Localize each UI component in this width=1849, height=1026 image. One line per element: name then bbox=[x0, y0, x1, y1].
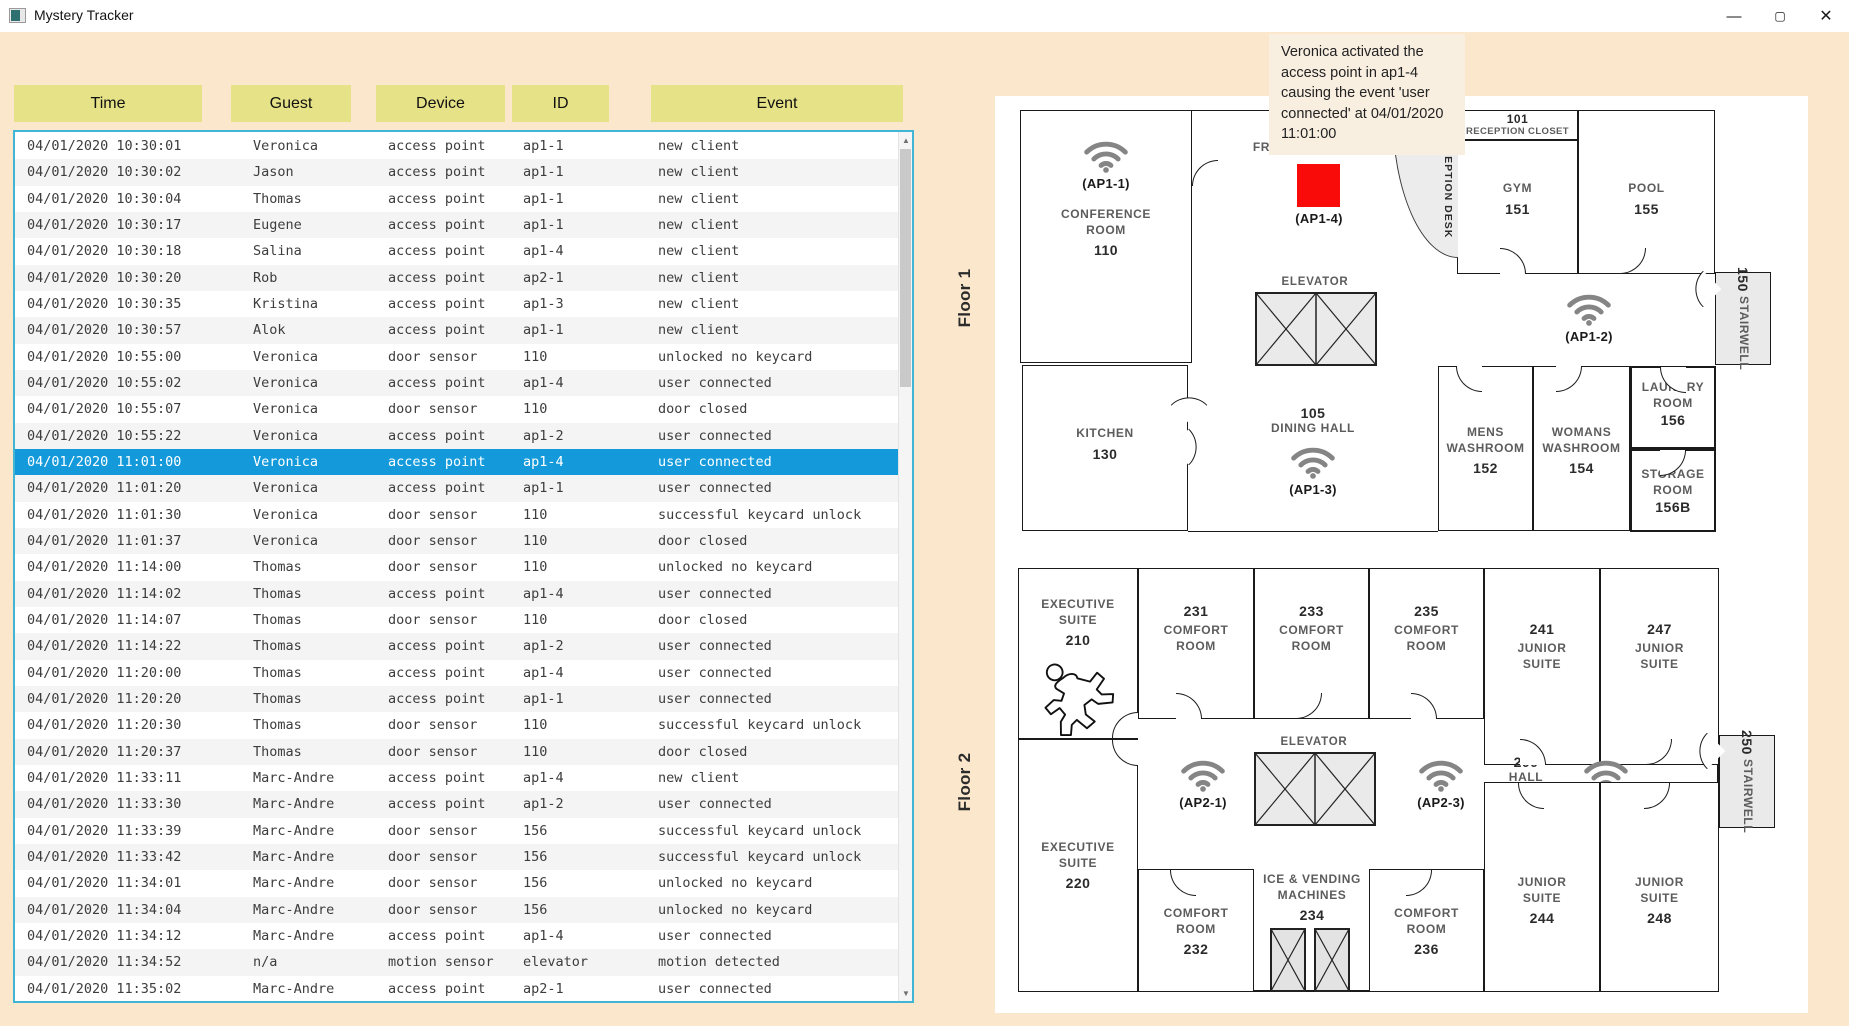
cell-guest: Veronica bbox=[253, 428, 318, 444]
header-event[interactable]: Event bbox=[651, 85, 903, 122]
cell-device: door sensor bbox=[388, 717, 477, 733]
cell-guest: Alok bbox=[253, 322, 286, 338]
cell-time: 04/01/2020 10:30:17 bbox=[27, 217, 181, 233]
ap1-4-active-marker bbox=[1297, 164, 1340, 207]
wifi-icon bbox=[1180, 756, 1226, 792]
cell-id: 110 bbox=[523, 401, 547, 417]
cell-time: 04/01/2020 11:34:01 bbox=[27, 875, 181, 891]
cell-id: 156 bbox=[523, 902, 547, 918]
cell-event: user connected bbox=[658, 691, 772, 707]
cell-device: door sensor bbox=[388, 559, 477, 575]
scroll-up-icon[interactable]: ▲ bbox=[899, 132, 913, 148]
stairwell-150: 150 STAIRWELL bbox=[1715, 272, 1771, 365]
cell-time: 04/01/2020 11:34:52 bbox=[27, 954, 181, 970]
vending-machine-icon bbox=[1314, 928, 1350, 992]
floor2-label: Floor 2 bbox=[955, 722, 975, 842]
cell-guest: Salina bbox=[253, 243, 302, 259]
cell-device: access point bbox=[388, 191, 486, 207]
app-icon bbox=[9, 8, 26, 23]
cell-device: access point bbox=[388, 796, 486, 812]
cell-guest: Thomas bbox=[253, 586, 302, 602]
cell-id: 156 bbox=[523, 875, 547, 891]
title-bar: Mystery Tracker — ▢ ✕ bbox=[0, 0, 1849, 32]
table-row[interactable]: 04/01/2020 11:34:52n/amotion sensoreleva… bbox=[15, 949, 899, 975]
table-row[interactable]: 04/01/2020 11:34:04Marc-Andredoor sensor… bbox=[15, 897, 899, 923]
cell-device: access point bbox=[388, 428, 486, 444]
cell-id: 156 bbox=[523, 823, 547, 839]
wifi-icon bbox=[1290, 443, 1336, 479]
cell-event: user connected bbox=[658, 428, 772, 444]
cell-time: 04/01/2020 10:30:57 bbox=[27, 322, 181, 338]
cell-event: unlocked no keycard bbox=[658, 349, 812, 365]
table-row[interactable]: 04/01/2020 11:01:37Veronicadoor sensor11… bbox=[15, 528, 899, 554]
cell-id: ap1-4 bbox=[523, 928, 564, 944]
cell-time: 04/01/2020 11:14:22 bbox=[27, 638, 181, 654]
cell-guest: Veronica bbox=[253, 349, 318, 365]
floor2-plan: EXECUTIVE SUITE 210 EXECUTIVE SUITE 220 … bbox=[1008, 560, 1808, 1010]
cell-event: user connected bbox=[658, 586, 772, 602]
cell-time: 04/01/2020 11:33:39 bbox=[27, 823, 181, 839]
cell-id: 110 bbox=[523, 717, 547, 733]
cell-event: successful keycard unlock bbox=[658, 507, 861, 523]
cell-id: ap1-4 bbox=[523, 770, 564, 786]
cell-time: 04/01/2020 11:01:37 bbox=[27, 533, 181, 549]
cell-time: 04/01/2020 10:55:02 bbox=[27, 375, 181, 391]
room-kitchen-130: KITCHEN 130 bbox=[1022, 365, 1188, 531]
cell-event: unlocked no keycard bbox=[658, 902, 812, 918]
room-pool-155: POOL 155 bbox=[1578, 110, 1715, 274]
table-row[interactable]: 04/01/2020 10:30:20Robaccess pointap2-1n… bbox=[15, 265, 899, 291]
ap1-1: (AP1-1) bbox=[1061, 137, 1151, 191]
room-comfort-231: 231 COMFORT ROOM bbox=[1138, 568, 1254, 719]
cell-event: new client bbox=[658, 138, 739, 154]
cell-guest: Eugene bbox=[253, 217, 302, 233]
cell-time: 04/01/2020 10:55:00 bbox=[27, 349, 181, 365]
cell-device: access point bbox=[388, 138, 486, 154]
floor1-label: Floor 1 bbox=[955, 238, 975, 358]
cell-event: user connected bbox=[658, 796, 772, 812]
cell-event: user connected bbox=[658, 454, 772, 470]
wifi-icon bbox=[1566, 290, 1612, 326]
event-table: 04/01/2020 10:30:01Veronicaaccess pointa… bbox=[13, 130, 914, 1003]
cell-device: access point bbox=[388, 454, 486, 470]
cell-event: unlocked no keycard bbox=[658, 875, 812, 891]
cell-device: access point bbox=[388, 586, 486, 602]
cell-id: elevator bbox=[523, 954, 588, 970]
door-arc bbox=[1192, 160, 1218, 186]
cell-event: door closed bbox=[658, 744, 747, 760]
cell-event: successful keycard unlock bbox=[658, 717, 861, 733]
cell-event: successful keycard unlock bbox=[658, 849, 861, 865]
table-row[interactable]: 04/01/2020 10:30:17Eugeneaccess pointap1… bbox=[15, 212, 899, 238]
cell-event: user connected bbox=[658, 928, 772, 944]
cell-guest: Marc-Andre bbox=[253, 875, 334, 891]
room-comfort-235: 235 COMFORT ROOM bbox=[1369, 568, 1484, 719]
cell-id: 110 bbox=[523, 559, 547, 575]
ap1-4: (AP1-4) bbox=[1277, 208, 1361, 226]
cell-guest: Veronica bbox=[253, 507, 318, 523]
cell-time: 04/01/2020 11:33:30 bbox=[27, 796, 181, 812]
cell-id: ap1-2 bbox=[523, 428, 564, 444]
cell-id: ap1-2 bbox=[523, 796, 564, 812]
window-title: Mystery Tracker bbox=[34, 7, 134, 23]
elevator-label-f1: ELEVATOR bbox=[1255, 276, 1375, 288]
cell-guest: Rob bbox=[253, 270, 277, 286]
cell-event: user connected bbox=[658, 981, 772, 997]
cell-device: access point bbox=[388, 638, 486, 654]
cell-time: 04/01/2020 11:01:20 bbox=[27, 480, 181, 496]
table-row[interactable]: 04/01/2020 11:33:30Marc-Andreaccess poin… bbox=[15, 791, 899, 817]
table-row[interactable]: 04/01/2020 10:55:22Veronicaaccess pointa… bbox=[15, 423, 899, 449]
floor1-plan: (AP1-1) CONFERENCE ROOM 110 FRONT LOBBY … bbox=[1008, 108, 1808, 538]
cell-event: user connected bbox=[658, 665, 772, 681]
cell-id: ap1-2 bbox=[523, 638, 564, 654]
cell-device: door sensor bbox=[388, 349, 477, 365]
cell-time: 04/01/2020 10:30:18 bbox=[27, 243, 181, 259]
cell-guest: Thomas bbox=[253, 744, 302, 760]
cell-time: 04/01/2020 11:35:02 bbox=[27, 981, 181, 997]
cell-time: 04/01/2020 11:20:37 bbox=[27, 744, 181, 760]
cell-guest: Marc-Andre bbox=[253, 823, 334, 839]
room-junior-241: 241 JUNIOR SUITE bbox=[1484, 568, 1600, 765]
cell-id: ap1-4 bbox=[523, 586, 564, 602]
cell-guest: Thomas bbox=[253, 717, 302, 733]
cell-guest: n/a bbox=[253, 954, 277, 970]
cell-guest: Veronica bbox=[253, 480, 318, 496]
table-row[interactable]: 04/01/2020 10:55:07Veronicadoor sensor11… bbox=[15, 396, 899, 422]
event-tooltip: Veronica activated the access point in a… bbox=[1269, 34, 1465, 155]
header-guest[interactable]: Guest bbox=[231, 85, 351, 122]
cell-guest: Veronica bbox=[253, 138, 318, 154]
cell-id: ap2-1 bbox=[523, 981, 564, 997]
ap2-3: (AP2-3) bbox=[1396, 756, 1486, 810]
cell-id: ap1-3 bbox=[523, 296, 564, 312]
ap1-3: (AP1-3) bbox=[1268, 443, 1358, 497]
cell-id: ap1-4 bbox=[523, 665, 564, 681]
cell-id: ap1-1 bbox=[523, 217, 564, 233]
room-conference-110: (AP1-1) CONFERENCE ROOM 110 bbox=[1020, 110, 1192, 363]
cell-device: motion sensor bbox=[388, 954, 494, 970]
cell-device: access point bbox=[388, 164, 486, 180]
cell-guest: Veronica bbox=[253, 375, 318, 391]
cell-time: 04/01/2020 10:55:22 bbox=[27, 428, 181, 444]
cell-time: 04/01/2020 11:34:12 bbox=[27, 928, 181, 944]
cell-id: ap1-1 bbox=[523, 191, 564, 207]
dining-bottom-wall bbox=[1188, 531, 1438, 532]
cell-event: new client bbox=[658, 217, 739, 233]
cell-id: 156 bbox=[523, 849, 547, 865]
cell-time: 04/01/2020 11:33:42 bbox=[27, 849, 181, 865]
table-row[interactable]: 04/01/2020 11:20:30Thomasdoor sensor110s… bbox=[15, 712, 899, 738]
cell-device: door sensor bbox=[388, 823, 477, 839]
cell-guest: Thomas bbox=[253, 638, 302, 654]
header-time[interactable]: Time bbox=[14, 85, 202, 122]
cell-id: ap2-1 bbox=[523, 270, 564, 286]
cell-id: 110 bbox=[523, 533, 547, 549]
elevator-label-f2: ELEVATOR bbox=[1254, 736, 1374, 748]
cell-device: access point bbox=[388, 296, 486, 312]
ap2-1: (AP2-1) bbox=[1158, 756, 1248, 810]
cell-time: 04/01/2020 11:20:20 bbox=[27, 691, 181, 707]
cell-device: access point bbox=[388, 270, 486, 286]
cell-device: access point bbox=[388, 928, 486, 944]
table-row[interactable]: 04/01/2020 11:14:07Thomasdoor sensor110d… bbox=[15, 607, 899, 633]
table-row[interactable]: 04/01/2020 10:30:04Thomasaccess pointap1… bbox=[15, 186, 899, 212]
cell-time: 04/01/2020 11:01:00 bbox=[27, 454, 181, 470]
table-row[interactable]: 04/01/2020 11:34:01Marc-Andredoor sensor… bbox=[15, 870, 899, 896]
stairwell-250: 250 STAIRWELL bbox=[1719, 735, 1775, 828]
cell-guest: Thomas bbox=[253, 612, 302, 628]
cell-event: new client bbox=[658, 243, 739, 259]
elevator-icon bbox=[1255, 292, 1377, 366]
cell-event: user connected bbox=[658, 480, 772, 496]
header-id[interactable]: ID bbox=[512, 85, 609, 122]
wifi-icon bbox=[1083, 137, 1129, 173]
cell-device: door sensor bbox=[388, 507, 477, 523]
room-junior-244: JUNIOR SUITE 244 bbox=[1484, 782, 1600, 992]
cell-guest: Veronica bbox=[253, 401, 318, 417]
cell-time: 04/01/2020 10:55:07 bbox=[27, 401, 181, 417]
cell-device: door sensor bbox=[388, 744, 477, 760]
maximize-button[interactable]: ▢ bbox=[1757, 0, 1803, 32]
scroll-down-icon[interactable]: ▼ bbox=[899, 985, 913, 1001]
cell-id: 110 bbox=[523, 507, 547, 523]
cell-event: successful keycard unlock bbox=[658, 823, 861, 839]
cell-device: access point bbox=[388, 322, 486, 338]
cell-id: 110 bbox=[523, 744, 547, 760]
cell-id: ap1-4 bbox=[523, 375, 564, 391]
table-row[interactable]: 04/01/2020 11:01:00Veronicaaccess pointa… bbox=[15, 449, 899, 475]
room-mens-washroom-152: MENS WASHROOM 152 bbox=[1438, 366, 1533, 531]
cell-guest: Marc-Andre bbox=[253, 981, 334, 997]
dining-hall-105: 105 DINING HALL (AP1-3) bbox=[1258, 405, 1368, 497]
cell-device: door sensor bbox=[388, 902, 477, 918]
table-row[interactable]: 04/01/2020 11:33:42Marc-Andredoor sensor… bbox=[15, 844, 899, 870]
cell-id: ap1-1 bbox=[523, 322, 564, 338]
table-row[interactable]: 04/01/2020 10:55:02Veronicaaccess pointa… bbox=[15, 370, 899, 396]
cell-event: motion detected bbox=[658, 954, 780, 970]
cell-event: door closed bbox=[658, 612, 747, 628]
cell-device: access point bbox=[388, 217, 486, 233]
cell-device: access point bbox=[388, 770, 486, 786]
cell-time: 04/01/2020 10:30:01 bbox=[27, 138, 181, 154]
cell-id: ap1-1 bbox=[523, 691, 564, 707]
cell-id: ap1-4 bbox=[523, 243, 564, 259]
cell-time: 04/01/2020 11:20:30 bbox=[27, 717, 181, 733]
cell-time: 04/01/2020 11:34:04 bbox=[27, 902, 181, 918]
cell-device: access point bbox=[388, 665, 486, 681]
table-row[interactable]: 04/01/2020 11:01:30Veronicadoor sensor11… bbox=[15, 502, 899, 528]
cell-id: ap1-1 bbox=[523, 164, 564, 180]
cell-guest: Thomas bbox=[253, 665, 302, 681]
cell-guest: Marc-Andre bbox=[253, 928, 334, 944]
cell-guest: Jason bbox=[253, 164, 294, 180]
table-row[interactable]: 04/01/2020 10:30:35Kristinaaccess pointa… bbox=[15, 291, 899, 317]
scrollbar-thumb[interactable] bbox=[900, 149, 911, 387]
cell-device: door sensor bbox=[388, 875, 477, 891]
cell-guest: Thomas bbox=[253, 191, 302, 207]
cell-guest: Veronica bbox=[253, 454, 318, 470]
table-row[interactable]: 04/01/2020 10:30:01Veronicaaccess pointa… bbox=[15, 133, 899, 159]
cell-time: 04/01/2020 11:20:00 bbox=[27, 665, 181, 681]
cell-id: 110 bbox=[523, 349, 547, 365]
cell-device: door sensor bbox=[388, 849, 477, 865]
cell-time: 04/01/2020 10:30:02 bbox=[27, 164, 181, 180]
cell-time: 04/01/2020 10:30:35 bbox=[27, 296, 181, 312]
scrollbar[interactable]: ▲ ▼ bbox=[898, 132, 912, 1001]
cell-time: 04/01/2020 11:01:30 bbox=[27, 507, 181, 523]
table-row[interactable]: 04/01/2020 10:30:02Jasonaccess pointap1-… bbox=[15, 159, 899, 185]
vending-machine-icon bbox=[1270, 928, 1306, 992]
cell-event: new client bbox=[658, 322, 739, 338]
room-reception-closet-101: 101 RECEPTION CLOSET bbox=[1457, 110, 1578, 140]
event-table-body: 04/01/2020 10:30:01Veronicaaccess pointa… bbox=[15, 133, 899, 1002]
room-womans-washroom-154: WOMANS WASHROOM 154 bbox=[1533, 366, 1630, 531]
minimize-button[interactable]: — bbox=[1711, 0, 1757, 32]
cell-event: new client bbox=[658, 270, 739, 286]
mystery-tracker-window: Mystery Tracker — ▢ ✕ Time Guest Device … bbox=[0, 0, 1849, 1026]
cell-id: ap1-1 bbox=[523, 480, 564, 496]
cell-time: 04/01/2020 11:14:02 bbox=[27, 586, 181, 602]
table-row[interactable]: 04/01/2020 11:14:22Thomasaccess pointap1… bbox=[15, 633, 899, 659]
cell-device: access point bbox=[388, 981, 486, 997]
table-row[interactable]: 04/01/2020 11:20:20Thomasaccess pointap1… bbox=[15, 686, 899, 712]
cell-time: 04/01/2020 11:14:07 bbox=[27, 612, 181, 628]
table-row[interactable]: 04/01/2020 11:20:37Thomasdoor sensor110d… bbox=[15, 739, 899, 765]
room-junior-248: JUNIOR SUITE 248 bbox=[1600, 782, 1719, 992]
cell-device: door sensor bbox=[388, 612, 477, 628]
table-row[interactable]: 04/01/2020 11:14:02Thomasaccess pointap1… bbox=[15, 581, 899, 607]
ice-vending-234: ICE & VENDING MACHINES 234 bbox=[1258, 872, 1366, 923]
cell-guest: Kristina bbox=[253, 296, 318, 312]
ap1-2: (AP1-2) bbox=[1544, 290, 1634, 344]
table-row[interactable]: 04/01/2020 10:30:18Salinaaccess pointap1… bbox=[15, 238, 899, 264]
cell-id: ap1-1 bbox=[523, 138, 564, 154]
close-button[interactable]: ✕ bbox=[1803, 0, 1849, 32]
room-comfort-232: COMFORT ROOM 232 bbox=[1138, 869, 1254, 992]
wifi-icon bbox=[1418, 756, 1464, 792]
table-row[interactable]: 04/01/2020 11:34:12Marc-Andreaccess poin… bbox=[15, 923, 899, 949]
cell-device: door sensor bbox=[388, 401, 477, 417]
table-row[interactable]: 04/01/2020 11:14:00Thomasdoor sensor110u… bbox=[15, 554, 899, 580]
cell-device: access point bbox=[388, 480, 486, 496]
cell-event: new client bbox=[658, 770, 739, 786]
cell-id: ap1-4 bbox=[523, 454, 564, 470]
room-comfort-236: COMFORT ROOM 236 bbox=[1369, 869, 1484, 992]
cell-event: user connected bbox=[658, 638, 772, 654]
table-row[interactable]: 04/01/2020 11:33:11Marc-Andreaccess poin… bbox=[15, 765, 899, 791]
table-row[interactable]: 04/01/2020 11:20:00Thomasaccess pointap1… bbox=[15, 660, 899, 686]
room-junior-247: 247 JUNIOR SUITE bbox=[1600, 568, 1719, 765]
table-row[interactable]: 04/01/2020 10:55:00Veronicadoor sensor11… bbox=[15, 344, 899, 370]
cell-guest: Marc-Andre bbox=[253, 849, 334, 865]
cell-device: door sensor bbox=[388, 533, 477, 549]
elevator-icon bbox=[1254, 752, 1376, 826]
cell-device: access point bbox=[388, 691, 486, 707]
cell-event: unlocked no keycard bbox=[658, 559, 812, 575]
cell-event: door closed bbox=[658, 401, 747, 417]
table-row[interactable]: 04/01/2020 11:01:20Veronicaaccess pointa… bbox=[15, 475, 899, 501]
cell-event: new client bbox=[658, 164, 739, 180]
cell-guest: Thomas bbox=[253, 559, 302, 575]
table-row[interactable]: 04/01/2020 10:30:57Alokaccess pointap1-1… bbox=[15, 317, 899, 343]
cell-device: access point bbox=[388, 375, 486, 391]
cell-event: user connected bbox=[658, 375, 772, 391]
room-executive-220: EXECUTIVE SUITE 220 bbox=[1018, 739, 1138, 992]
header-device[interactable]: Device bbox=[376, 85, 505, 122]
cell-time: 04/01/2020 10:30:04 bbox=[27, 191, 181, 207]
cell-guest: Marc-Andre bbox=[253, 902, 334, 918]
cell-event: new client bbox=[658, 296, 739, 312]
cell-time: 04/01/2020 10:30:20 bbox=[27, 270, 181, 286]
cell-device: access point bbox=[388, 243, 486, 259]
cell-time: 04/01/2020 11:14:00 bbox=[27, 559, 181, 575]
cell-event: new client bbox=[658, 191, 739, 207]
cell-guest: Marc-Andre bbox=[253, 770, 334, 786]
cell-time: 04/01/2020 11:33:11 bbox=[27, 770, 181, 786]
table-row[interactable]: 04/01/2020 11:33:39Marc-Andredoor sensor… bbox=[15, 818, 899, 844]
cell-guest: Thomas bbox=[253, 691, 302, 707]
cell-event: door closed bbox=[658, 533, 747, 549]
table-row[interactable]: 04/01/2020 11:35:02Marc-Andreaccess poin… bbox=[15, 976, 899, 1002]
cell-guest: Veronica bbox=[253, 533, 318, 549]
cell-id: 110 bbox=[523, 612, 547, 628]
cell-guest: Marc-Andre bbox=[253, 796, 334, 812]
